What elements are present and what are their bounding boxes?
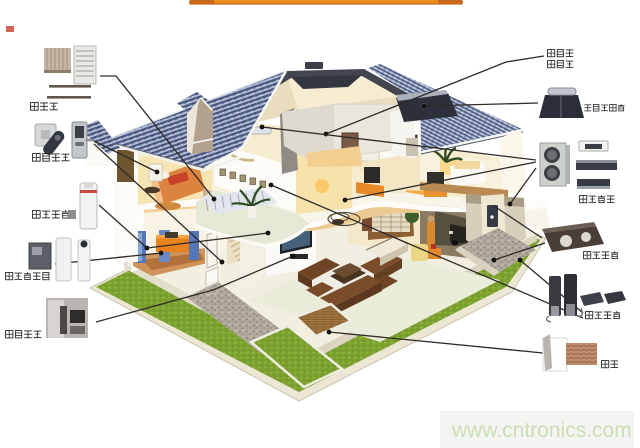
svg-text:www.cntronics.com: www.cntronics.com (451, 419, 632, 442)
